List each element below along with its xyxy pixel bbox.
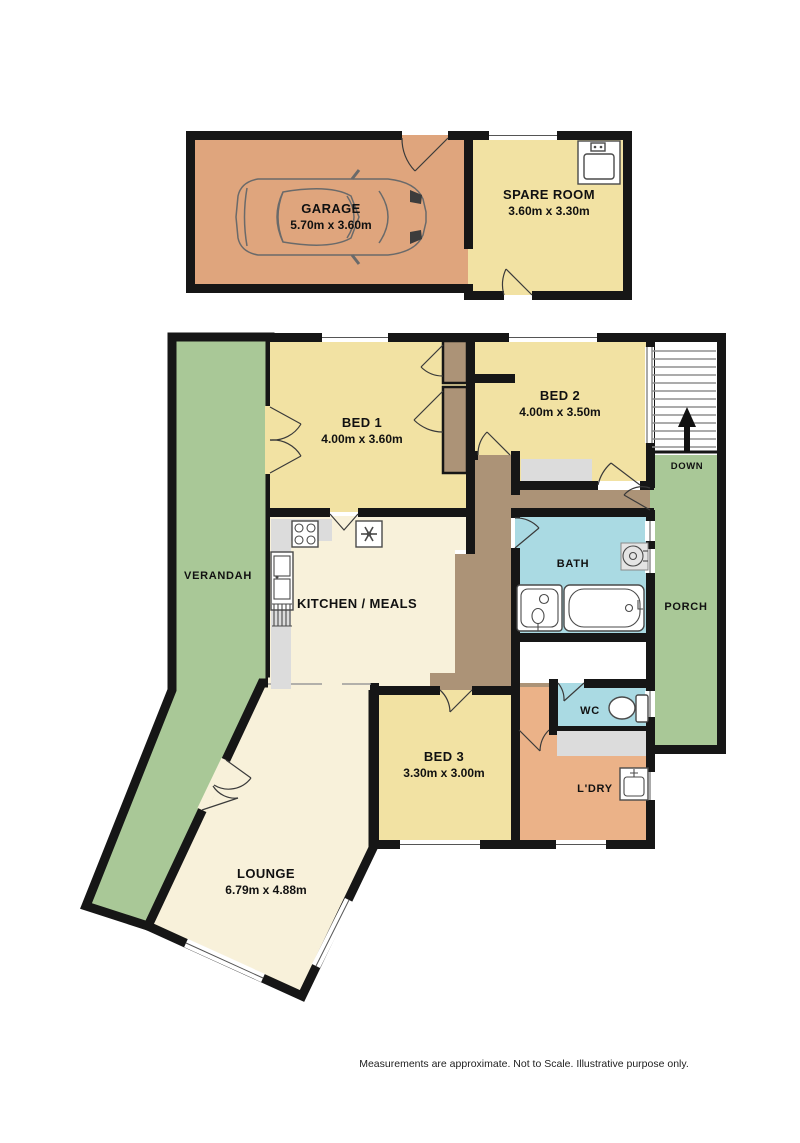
bed1-dims: 4.00m x 3.60m — [321, 432, 402, 446]
bath-label: BATH — [557, 558, 590, 570]
bed1-label: BED 1 — [342, 415, 382, 430]
spare-room-label: SPARE ROOM — [503, 187, 595, 202]
laundry-lobby — [515, 687, 549, 730]
vanity-icon — [517, 585, 562, 631]
toilet-icon — [609, 695, 648, 722]
bed3-dims: 3.30m x 3.00m — [403, 766, 484, 780]
sink-icon — [578, 141, 620, 184]
bathtub-icon — [564, 585, 644, 631]
stairs-down-label: DOWN — [671, 461, 703, 472]
basin-icon — [621, 543, 648, 570]
bed2-dims: 4.00m x 3.50m — [519, 405, 600, 419]
kitchen-label: KITCHEN / MEALS — [297, 596, 417, 611]
fan-icon — [356, 521, 382, 547]
window — [489, 131, 557, 140]
verandah-label: VERANDAH — [184, 570, 252, 582]
kitchen-sink-icon — [271, 552, 293, 626]
stove-icon — [292, 521, 318, 547]
robe — [521, 459, 592, 481]
window — [400, 840, 480, 849]
window — [645, 347, 654, 443]
window — [509, 333, 597, 342]
spare-room-dims: 3.60m x 3.30m — [508, 204, 589, 218]
trough-icon — [620, 768, 648, 800]
disclaimer-text: Measurements are approximate. Not to Sca… — [359, 1058, 689, 1070]
window — [556, 840, 606, 849]
garage-dims: 5.70m x 3.60m — [290, 218, 371, 232]
garage-label: GARAGE — [301, 201, 360, 216]
wc-label: WC — [580, 705, 600, 717]
laundry-bench — [557, 731, 646, 756]
porch-label: PORCH — [664, 601, 707, 613]
window — [322, 333, 388, 342]
floorplan-page: GARAGE 5.70m x 3.60m SPARE ROOM 3.60m x … — [0, 0, 800, 1143]
laundry-label: L'DRY — [577, 783, 613, 795]
lounge-dims: 6.79m x 4.88m — [225, 883, 306, 897]
robe — [443, 341, 467, 473]
floorplan-drawing: GARAGE 5.70m x 3.60m SPARE ROOM 3.60m x … — [0, 0, 800, 1143]
window — [645, 521, 655, 541]
lounge-label: LOUNGE — [237, 866, 295, 881]
bed3-label: BED 3 — [424, 749, 464, 764]
bed2-label: BED 2 — [540, 388, 580, 403]
